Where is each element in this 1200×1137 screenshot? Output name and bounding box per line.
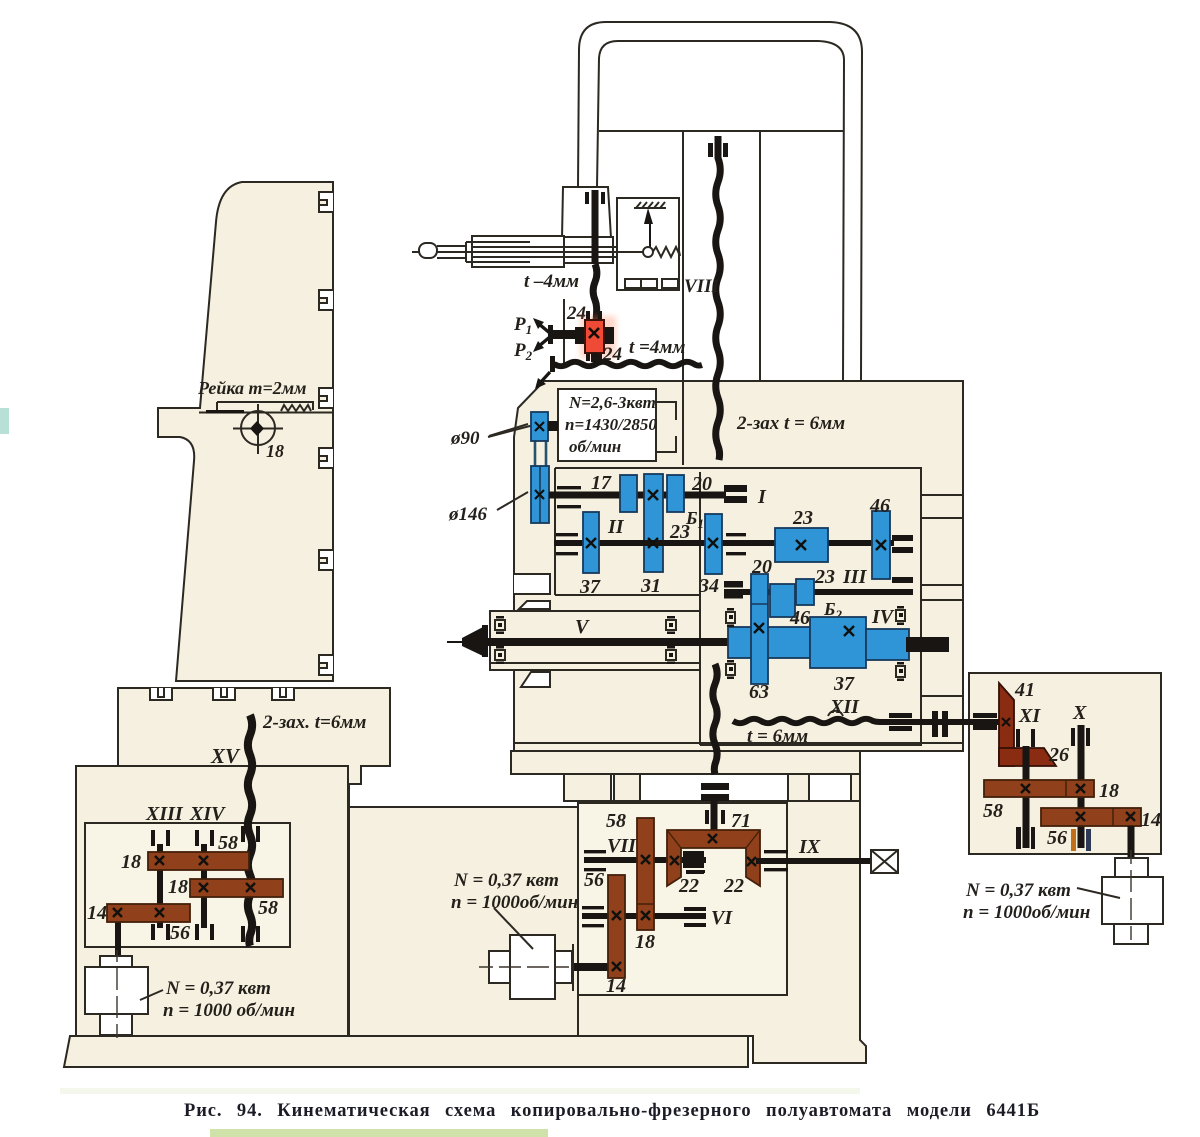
svg-text:t –4мм: t –4мм: [524, 271, 579, 292]
svg-text:14: 14: [606, 975, 626, 997]
svg-text:IV: IV: [871, 606, 895, 628]
svg-text:22: 22: [723, 875, 744, 897]
svg-text:X: X: [1072, 702, 1087, 724]
svg-text:20: 20: [691, 473, 712, 495]
svg-text:63: 63: [749, 681, 769, 703]
svg-text:17: 17: [591, 472, 612, 494]
svg-text:41: 41: [1014, 679, 1035, 701]
svg-text:VI: VI: [711, 907, 733, 929]
svg-text:22: 22: [678, 875, 699, 897]
svg-text:37: 37: [579, 576, 601, 598]
svg-text:N = 0,37 квт: N = 0,37 квт: [165, 978, 271, 999]
svg-text:n = 1000об/мин: n = 1000об/мин: [963, 902, 1090, 923]
svg-text:n = 1000об/мин: n = 1000об/мин: [451, 892, 578, 913]
svg-text:N=2,6-3квт: N=2,6-3квт: [568, 393, 656, 412]
svg-text:31: 31: [640, 575, 661, 597]
svg-text:18: 18: [635, 931, 655, 953]
svg-text:18: 18: [1099, 780, 1119, 802]
svg-text:III: III: [842, 566, 868, 588]
svg-text:t =4мм: t =4мм: [629, 337, 685, 358]
svg-text:ø146: ø146: [448, 504, 488, 525]
svg-text:об/мин: об/мин: [569, 437, 621, 456]
svg-text:58: 58: [606, 810, 626, 832]
svg-text:14: 14: [87, 902, 107, 924]
svg-text:18: 18: [121, 851, 141, 873]
svg-text:58: 58: [258, 897, 278, 919]
svg-text:34: 34: [698, 575, 719, 597]
svg-text:Рис. 94. Кинематическая схема: Рис. 94. Кинематическая схема копироваль…: [184, 1101, 1040, 1121]
svg-text:XV: XV: [210, 744, 241, 768]
svg-text:XII: XII: [829, 696, 860, 718]
svg-text:XIII: XIII: [145, 803, 184, 825]
svg-text:26: 26: [1048, 744, 1069, 766]
svg-text:Рейка m=2мм: Рейка m=2мм: [197, 378, 306, 398]
svg-text:2-зах. t=6мм: 2-зах. t=6мм: [262, 712, 366, 733]
svg-text:XI: XI: [1018, 705, 1041, 727]
svg-text:N = 0,37 квт: N = 0,37 квт: [453, 870, 559, 891]
svg-text:14: 14: [1141, 809, 1161, 831]
svg-text:18: 18: [266, 441, 284, 461]
svg-text:XIV: XIV: [189, 803, 226, 825]
svg-text:46: 46: [789, 607, 810, 629]
svg-text:58: 58: [218, 832, 238, 854]
svg-text:VII: VII: [607, 835, 637, 857]
svg-text:18: 18: [168, 876, 188, 898]
svg-text:23: 23: [792, 507, 813, 529]
svg-text:23: 23: [669, 521, 690, 543]
svg-text:n = 1000 об/мин: n = 1000 об/мин: [163, 1000, 295, 1021]
svg-text:2-зах t = 6мм: 2-зах t = 6мм: [736, 413, 845, 434]
svg-text:37: 37: [833, 673, 855, 695]
svg-text:VIII: VIII: [684, 276, 719, 297]
svg-text:V: V: [575, 616, 590, 638]
svg-text:IX: IX: [798, 836, 821, 858]
svg-text:t = 6мм: t = 6мм: [747, 726, 808, 747]
svg-text:n=1430/2850: n=1430/2850: [565, 415, 657, 434]
svg-text:56: 56: [1047, 827, 1067, 849]
svg-text:71: 71: [731, 810, 751, 832]
svg-text:23: 23: [814, 566, 835, 588]
svg-text:56: 56: [584, 869, 604, 891]
svg-text:56: 56: [170, 922, 190, 944]
svg-text:N = 0,37 квт: N = 0,37 квт: [965, 880, 1071, 901]
svg-text:58: 58: [983, 800, 1003, 822]
svg-text:46: 46: [869, 495, 890, 517]
svg-text:I: I: [757, 486, 767, 508]
svg-text:ø90: ø90: [450, 428, 480, 449]
svg-text:II: II: [607, 516, 625, 538]
